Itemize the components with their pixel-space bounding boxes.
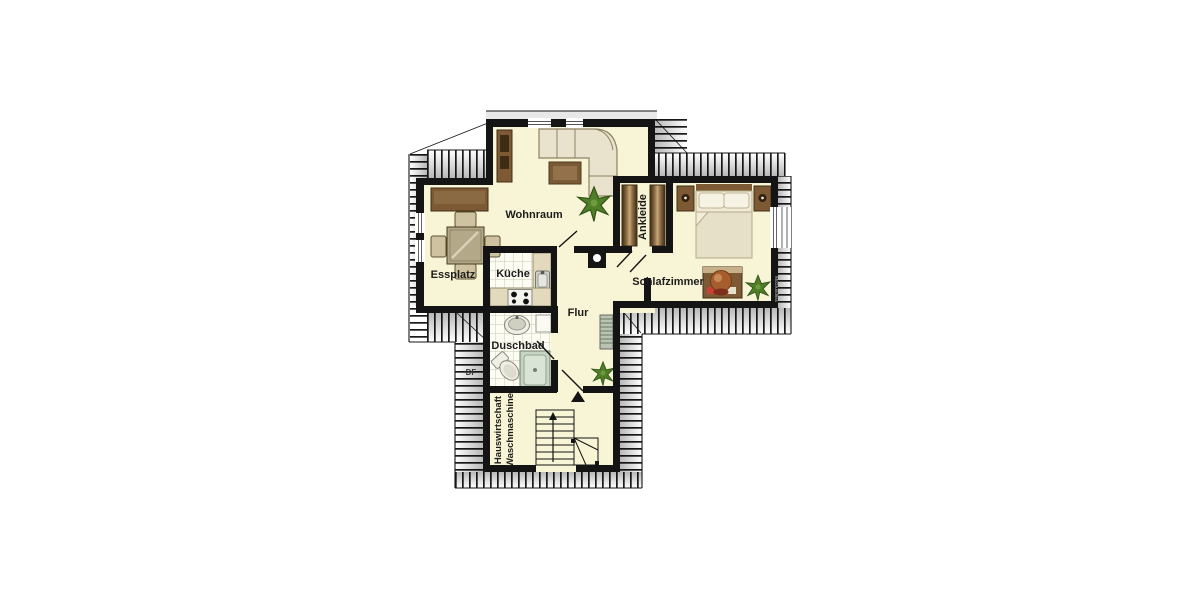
pillow: [699, 193, 724, 208]
label-wohnraum: Wohnraum: [505, 209, 562, 221]
label-roof-window: DF: [466, 368, 477, 377]
chair: [455, 212, 476, 227]
vase: [711, 271, 732, 292]
pillow: [724, 193, 749, 208]
label-waschmaschine: Waschmaschine: [505, 393, 516, 467]
wardrobe: [622, 185, 637, 246]
floor-plan-canvas: Wohnraum Essplatz Küche Flur Duschbad Sc…: [0, 0, 1200, 600]
dresser: [703, 267, 742, 298]
label-hauswirtschaft: Hauswirtschaft: [493, 395, 504, 464]
wardrobe: [650, 185, 665, 246]
watermark: McGrundriss: [774, 276, 779, 302]
label-duschbad: Duschbad: [491, 340, 544, 352]
chair: [431, 236, 446, 257]
label-ankleide: Ankleide: [637, 194, 649, 240]
double-bed: [696, 184, 752, 258]
radiator: [600, 315, 613, 349]
bath-cabinet: [536, 315, 551, 332]
label-kueche: Küche: [496, 268, 530, 280]
label-schlafzimmer: Schlafzimmer: [632, 276, 704, 288]
label-essplatz: Essplatz: [431, 269, 476, 281]
label-flur: Flur: [568, 307, 589, 319]
floor-plan-drawing: Wohnraum Essplatz Küche Flur Duschbad Sc…: [0, 0, 1200, 600]
